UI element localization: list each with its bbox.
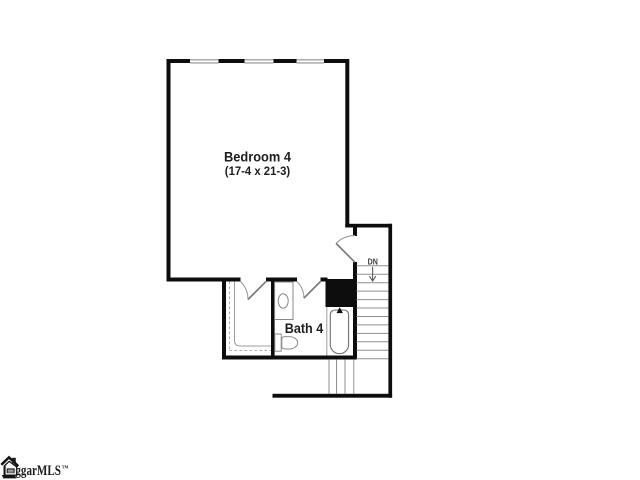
svg-text:ggarMLS: ggarMLS (15, 463, 61, 479)
svg-text:Bedroom 4: Bedroom 4 (224, 150, 291, 165)
svg-text:Bath 4: Bath 4 (285, 321, 324, 336)
svg-text:DN: DN (368, 257, 378, 267)
svg-text:(17-4 x 21-3): (17-4 x 21-3) (225, 164, 290, 178)
svg-text:™: ™ (62, 464, 69, 472)
